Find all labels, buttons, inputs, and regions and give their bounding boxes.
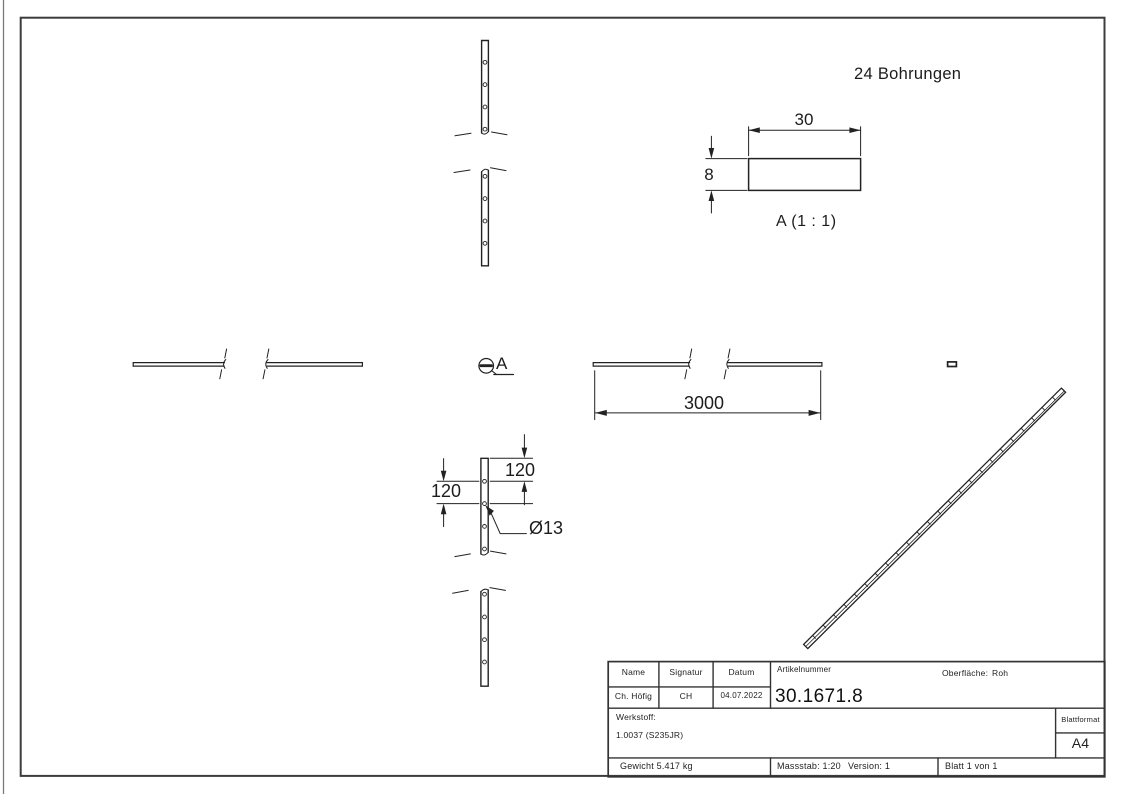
- dim-length-3000: 3000: [672, 394, 736, 413]
- titleblock-signatur: CH: [659, 692, 713, 701]
- titleblock-oberflaeche-value: Roh: [992, 669, 1008, 678]
- detail-callout-letter: A: [496, 355, 507, 373]
- dim-hole-diameter: Ø13: [529, 519, 563, 538]
- titleblock-oberflaeche-label: Oberfläche:: [942, 669, 988, 678]
- dim-detail-thickness: 8: [697, 166, 721, 184]
- view-front-left: [133, 349, 362, 379]
- titleblock-blattformat-value: A4: [1056, 736, 1105, 751]
- detail-view-A: [706, 127, 861, 213]
- view-top-vertical: [454, 41, 507, 266]
- drawing-sheet: 24 Bohrungen 30 8 A (1 : 1) A 3000 120 1…: [0, 0, 1123, 794]
- title-block-grid: [608, 662, 1105, 777]
- view-end-small: [948, 362, 957, 367]
- dim-hole-spacing-lower: 120: [426, 482, 466, 501]
- titleblock-gewicht: Gewicht 5.417 kg: [620, 762, 693, 771]
- detail-view-title: A (1 : 1): [776, 214, 837, 231]
- dim-hole-spacing-upper: 120: [500, 461, 540, 480]
- leader-hole-dia: [485, 505, 526, 533]
- titleblock-header-signatur: Signatur: [659, 668, 713, 677]
- dim-detail-width: 30: [782, 111, 826, 129]
- titleblock-datum: 04.07.2022: [713, 692, 770, 700]
- titleblock-header-name: Name: [608, 668, 659, 677]
- titleblock-werkstoff-label: Werkstoff:: [616, 713, 656, 722]
- drawing-frame: [21, 18, 1105, 776]
- titleblock-version: Version: 1: [848, 762, 890, 771]
- titleblock-artikelnummer-label: Artikelnummer: [777, 666, 831, 674]
- isometric-holes: [813, 397, 1056, 638]
- titleblock-massstab: Massstab: 1:20: [777, 762, 841, 771]
- titleblock-blatt: Blatt 1 von 1: [945, 762, 998, 771]
- titleblock-werkstoff-value: 1.0037 (S235JR): [616, 731, 683, 740]
- titleblock-artikelnummer: 30.1671.8: [775, 687, 863, 707]
- note-hole-count: 24 Bohrungen: [854, 66, 961, 83]
- view-isometric: [804, 388, 1066, 648]
- titleblock-blattformat-label: Blattformat: [1056, 716, 1105, 724]
- titleblock-header-datum: Datum: [713, 668, 770, 677]
- titleblock-name: Ch. Höfig: [608, 692, 659, 701]
